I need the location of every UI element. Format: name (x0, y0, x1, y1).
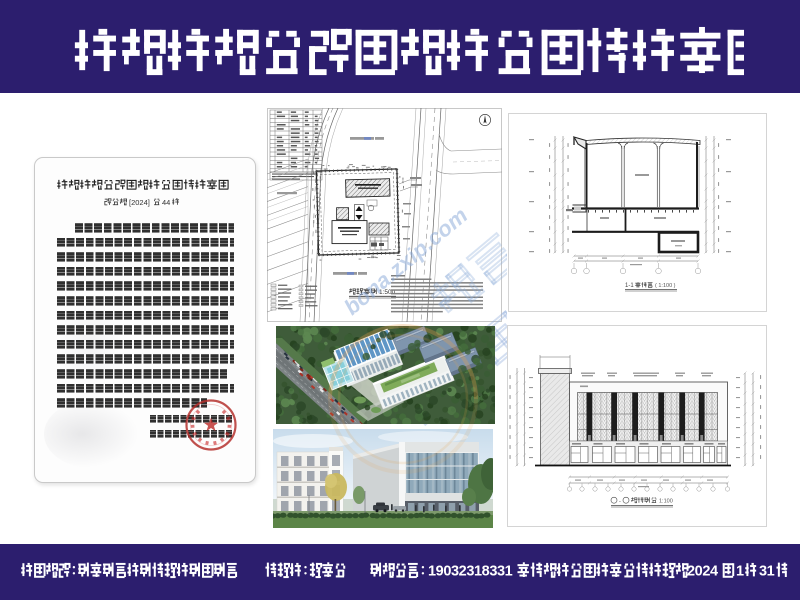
svg-text:1-1: 1-1 (625, 283, 634, 289)
svg-text:44: 44 (162, 198, 170, 207)
svg-text:2024: 2024 (687, 563, 718, 579)
svg-text:-: - (619, 499, 621, 505)
svg-text:1:100: 1:100 (659, 499, 673, 505)
svg-text:31: 31 (759, 563, 775, 579)
svg-text:( 1:100 ): ( 1:100 ) (655, 283, 676, 289)
svg-text:[2024]: [2024] (129, 198, 150, 207)
svg-text:1: 1 (736, 563, 744, 579)
svg-text:19032318331: 19032318331 (428, 563, 513, 579)
